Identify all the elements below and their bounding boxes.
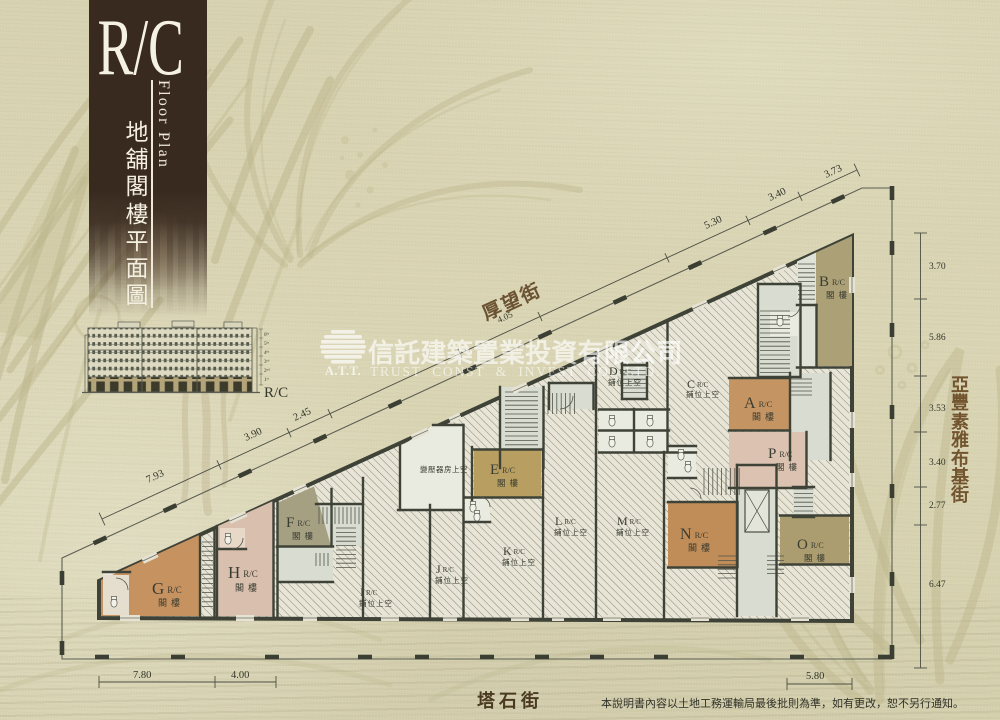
svg-text:7.93: 7.93 [145, 468, 166, 486]
svg-text:3.70: 3.70 [929, 262, 946, 272]
svg-text:3.40: 3.40 [767, 186, 788, 204]
svg-text:閣樓: 閣樓 [804, 553, 829, 563]
svg-text:閣樓: 閣樓 [292, 531, 317, 541]
svg-text:鋪位上空: 鋪位上空 [554, 527, 588, 537]
svg-text:6.47: 6.47 [929, 580, 946, 590]
svg-text:2.45: 2.45 [292, 406, 313, 424]
svg-text:閣樓: 閣樓 [688, 542, 714, 553]
svg-text:3.40: 3.40 [929, 458, 946, 468]
svg-text:閣樓: 閣樓 [497, 478, 522, 488]
svg-text:鋪位上空: 鋪位上空 [686, 389, 720, 399]
svg-text:鋪位上空: 鋪位上空 [616, 527, 650, 537]
svg-text:變壓器房上空: 變壓器房上空 [420, 464, 468, 474]
svg-text:閣樓: 閣樓 [235, 582, 261, 593]
svg-text:7.80: 7.80 [133, 670, 151, 681]
svg-text:3.90: 3.90 [243, 426, 264, 444]
svg-text:2.77: 2.77 [929, 501, 946, 511]
svg-text:3.73: 3.73 [823, 163, 844, 181]
svg-text:5.80: 5.80 [806, 671, 824, 682]
svg-text:4.00: 4.00 [231, 670, 249, 681]
svg-text:3.53: 3.53 [929, 404, 946, 414]
svg-text:5.86: 5.86 [929, 333, 946, 343]
svg-text:鋪位上空: 鋪位上空 [502, 557, 536, 567]
svg-text:閣樓: 閣樓 [158, 597, 184, 608]
svg-text:閣樓: 閣樓 [776, 462, 801, 472]
svg-text:閣樓: 閣樓 [826, 290, 851, 300]
svg-text:鋪位上空: 鋪位上空 [359, 598, 393, 608]
svg-text:5.30: 5.30 [703, 214, 724, 232]
svg-text:閣樓: 閣樓 [752, 411, 778, 422]
svg-text:鋪位上空: 鋪位上空 [435, 575, 469, 585]
